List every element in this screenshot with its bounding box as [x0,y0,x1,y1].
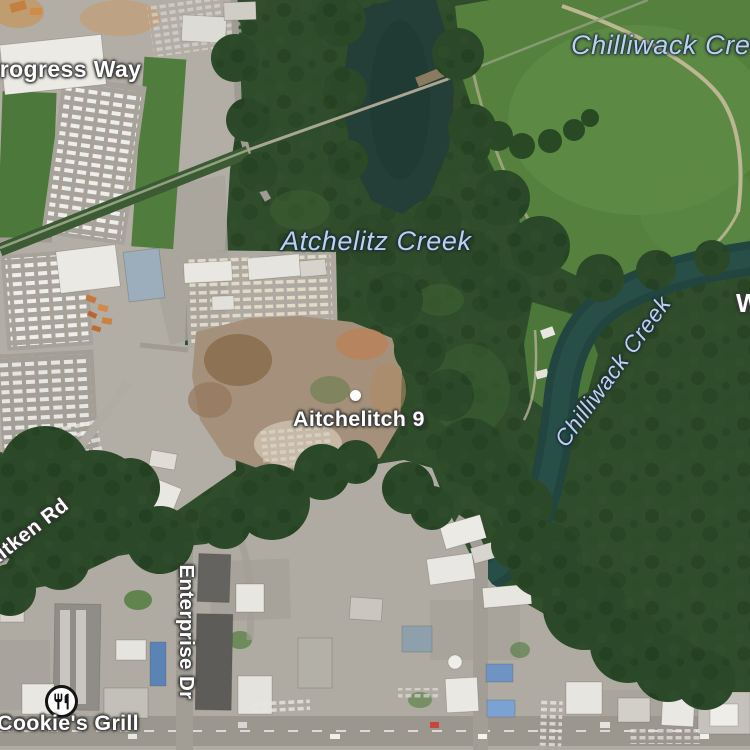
place-label-text[interactable]: Aitchelitch 9 [293,407,423,432]
road-label-enterprise-dr: Enterprise Dr [174,552,198,712]
map-canvas[interactable]: Progress Way Chilliwack Creek Atchelitz … [0,0,750,750]
road-label-partial: W [736,288,750,319]
road-label-progress-way: Progress Way [0,56,141,83]
water-label-atchelitz-creek: Atchelitz Creek [281,226,472,257]
satellite-imagery [0,0,750,750]
water-label-chilliwack-creek-upper: Chilliwack Creek [571,30,750,61]
poi-label-text[interactable]: Cookie's Grill [0,711,139,736]
